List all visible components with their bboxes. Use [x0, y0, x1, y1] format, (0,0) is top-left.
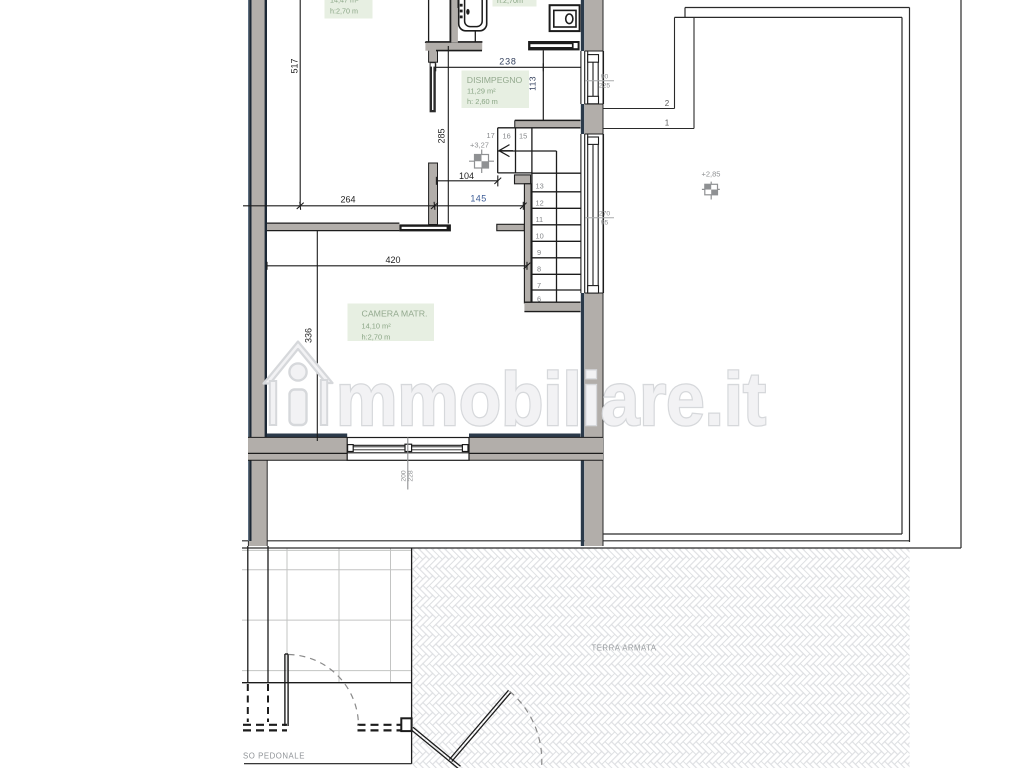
svg-text:270: 270	[599, 211, 611, 218]
svg-text:SO PEDONALE: SO PEDONALE	[243, 752, 305, 761]
svg-text:1: 1	[665, 119, 670, 128]
svg-text:2: 2	[665, 99, 670, 108]
svg-text:420: 420	[385, 255, 400, 265]
svg-text:+3,27: +3,27	[470, 141, 489, 150]
svg-text:8: 8	[537, 265, 541, 274]
svg-text:14,10 m²: 14,10 m²	[362, 322, 392, 331]
svg-text:11: 11	[536, 215, 544, 224]
svg-text:225: 225	[599, 83, 611, 90]
svg-text:517: 517	[290, 58, 300, 73]
svg-text:14,47 m²: 14,47 m²	[330, 0, 359, 5]
svg-text:9: 9	[537, 248, 541, 257]
svg-text:145: 145	[470, 194, 486, 204]
svg-text:264: 264	[340, 195, 355, 205]
svg-text:228: 228	[408, 470, 415, 482]
svg-text:DISIMPEGNO: DISIMPEGNO	[467, 75, 523, 85]
svg-text:238: 238	[499, 57, 516, 67]
svg-text:10: 10	[536, 232, 544, 241]
svg-text:+2,85: +2,85	[702, 170, 721, 179]
svg-text:TERRA ARMATA: TERRA ARMATA	[591, 644, 656, 653]
svg-text:h:2,70 m: h:2,70 m	[330, 7, 358, 16]
svg-text:90: 90	[601, 74, 609, 81]
svg-text:15: 15	[519, 132, 527, 141]
svg-text:7: 7	[537, 281, 541, 290]
svg-text:mmobiliare.it: mmobiliare.it	[336, 357, 766, 441]
svg-text:6: 6	[537, 295, 541, 304]
svg-text:16: 16	[503, 132, 511, 141]
svg-text:17: 17	[487, 131, 495, 140]
svg-text:h:2,70 m: h:2,70 m	[362, 333, 391, 342]
svg-text:336: 336	[304, 328, 314, 343]
svg-text:13: 13	[536, 181, 544, 190]
svg-text:11,29 m²: 11,29 m²	[467, 87, 496, 96]
svg-text:200: 200	[401, 470, 408, 482]
svg-text:95: 95	[601, 220, 609, 227]
svg-text:104: 104	[459, 171, 474, 181]
svg-text:285: 285	[437, 128, 447, 143]
svg-text:CAMERA MATR.: CAMERA MATR.	[362, 309, 428, 319]
svg-text:12: 12	[536, 199, 544, 208]
svg-text:h:2,70m: h:2,70m	[497, 0, 523, 5]
svg-text:h: 2,60 m: h: 2,60 m	[467, 97, 498, 106]
